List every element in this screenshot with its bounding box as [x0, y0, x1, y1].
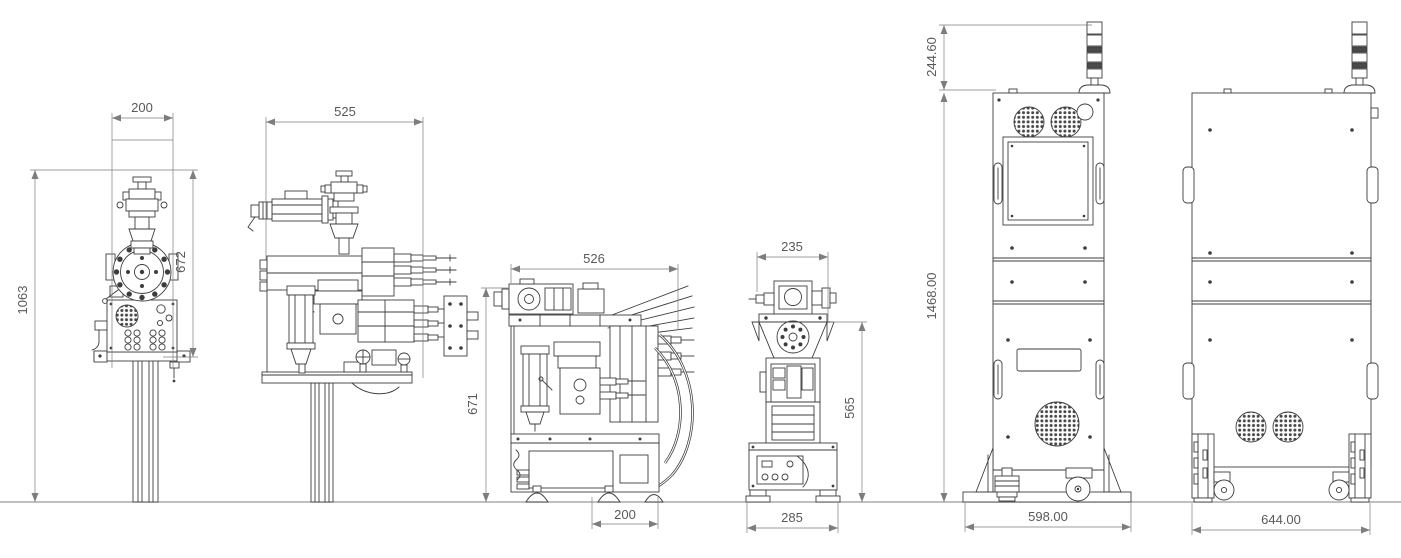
lower-manifold [358, 296, 478, 356]
top-motor [494, 279, 604, 314]
dim-label: 672 [173, 251, 188, 273]
dim-label: 1063 [15, 286, 30, 315]
frame [511, 326, 514, 434]
dim-label: 285 [781, 510, 803, 525]
dim-label: 565 [842, 397, 857, 419]
dim-label: 598.00 [1028, 509, 1068, 524]
dim-label: 235 [781, 239, 803, 254]
horizontal-motor [248, 191, 338, 231]
swivel-plate [752, 314, 834, 358]
signal-tower [1079, 22, 1110, 93]
view-cabinet-side [1183, 22, 1378, 502]
gearbox [749, 281, 836, 314]
dim-label: 1468.00 [924, 273, 939, 320]
view-doser-front [746, 281, 840, 502]
dim-label: 526 [583, 251, 605, 266]
leveling-foot [995, 468, 1019, 501]
view-pump-front [92, 177, 190, 502]
top-rail [509, 315, 641, 326]
base-box [749, 443, 837, 490]
mounting-post [133, 360, 158, 502]
caster-wheel [1214, 472, 1349, 500]
signal-tower [1344, 22, 1375, 93]
dim-label: 200 [614, 507, 636, 522]
cylinder [521, 346, 549, 431]
vent-fan-icon [1035, 402, 1079, 446]
dim-label: 525 [334, 104, 356, 119]
base-plate [262, 362, 412, 394]
hand-valves [356, 350, 410, 372]
pump-control-box [92, 300, 177, 352]
electronics-box [511, 434, 659, 492]
dimension-v4-base-width: 285 [747, 503, 838, 533]
mounting-post [311, 383, 333, 502]
vent-fan-icon [1236, 412, 1266, 442]
dimension-v5-base-width: 598.00 [965, 503, 1131, 532]
doser-body [760, 358, 820, 443]
vertical-cylinder [287, 286, 315, 373]
door-panel [1003, 137, 1093, 225]
dimension-v6-base-width: 644.00 [1192, 503, 1370, 535]
vent-fan-icon [116, 305, 138, 327]
vent-fan-icon [1014, 107, 1044, 137]
dimension-v5-beacon-height: 244.60 [924, 25, 1092, 90]
side-connector [1371, 108, 1378, 118]
dim-label: 200 [131, 100, 153, 115]
button-icon [1077, 104, 1093, 120]
dim-label: 644.00 [1261, 512, 1301, 527]
view-cabinet-front [963, 22, 1131, 502]
top-valve-stack [117, 177, 167, 254]
base-plate [963, 492, 1131, 502]
dim-label: 671 [465, 393, 480, 415]
drawing-svg: 200 1063 672 [0, 0, 1401, 558]
feet [746, 490, 840, 502]
cabinet-body [1192, 89, 1371, 467]
caster-wheel [1066, 468, 1092, 501]
vent-fan-icon [1273, 412, 1303, 442]
view-doser-side [494, 279, 694, 502]
view-pump-side [248, 171, 478, 502]
dimension-v5-height: 1468.00 [924, 93, 944, 502]
vent-fan-icon [1051, 107, 1081, 137]
dim-label: 244.60 [924, 37, 939, 77]
technical-drawing-canvas: 200 1063 672 [0, 0, 1401, 558]
upper-manifold [362, 248, 456, 296]
